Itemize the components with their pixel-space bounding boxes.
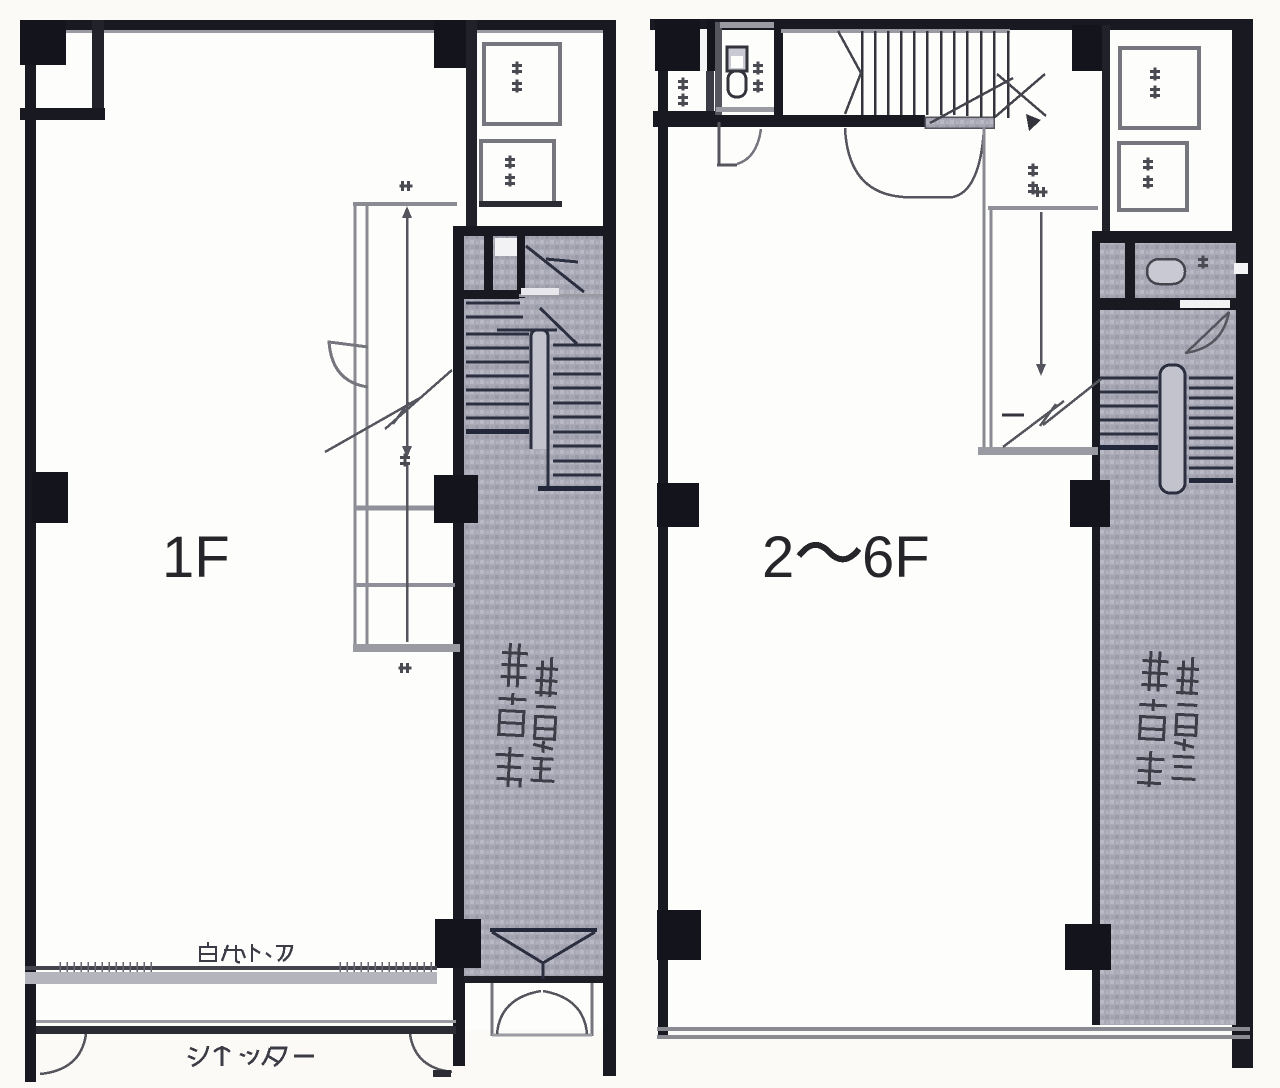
svg-text:1F: 1F: [162, 525, 230, 590]
svg-text:2: 2: [762, 525, 794, 590]
svg-text:6F: 6F: [862, 525, 930, 590]
